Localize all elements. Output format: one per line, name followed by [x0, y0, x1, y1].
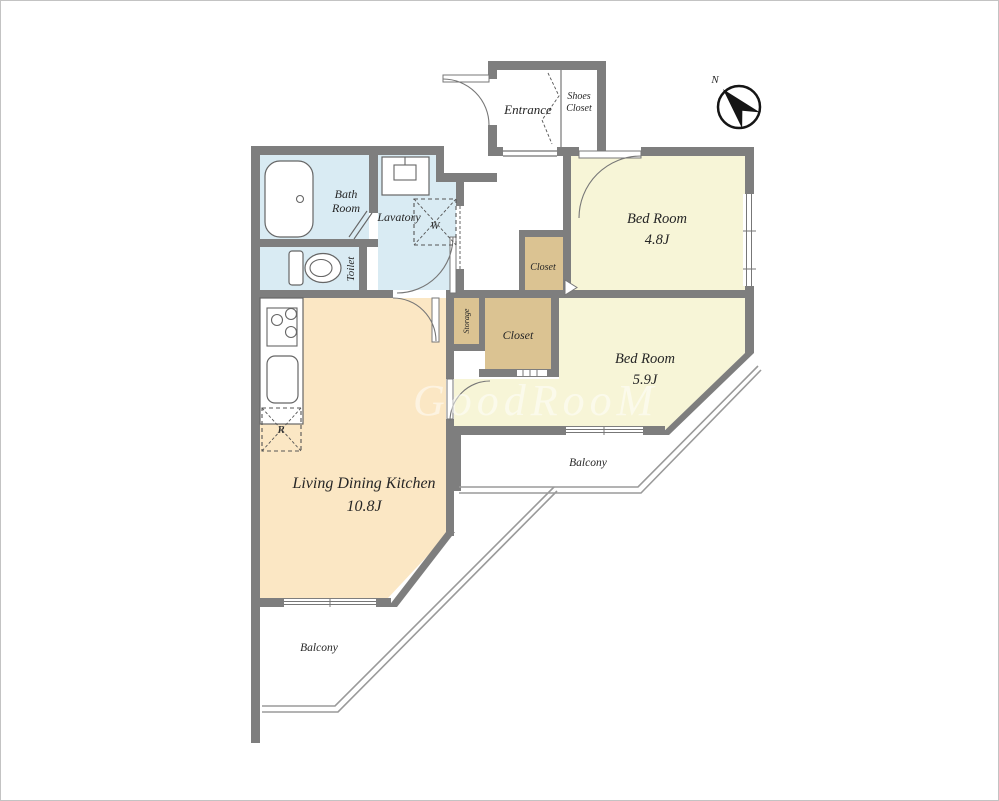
shoes-closet-label-2: Closet [566, 103, 592, 114]
shoes-closet-label-1: Shoes [567, 91, 590, 102]
wall-storage-closet-divider [479, 298, 485, 344]
closet-bedroom1-label: Closet [530, 262, 556, 273]
storage-label: Storage [462, 308, 471, 333]
bedroom2-area: 5.9J [633, 372, 658, 388]
ldk-name: Living Dining Kitchen [291, 475, 435, 492]
wall-entrance-bottom-left [488, 147, 503, 156]
bath-room-label-2: Room [331, 201, 360, 215]
balcony-lower-label: Balcony [300, 642, 339, 654]
wall-entrance-bottom-right [557, 147, 579, 156]
wall-step-vertical [436, 155, 444, 182]
wall-toilet-right [359, 247, 367, 290]
wall-storage-bottom [446, 344, 485, 351]
wall-lavatory-right-upper [456, 182, 464, 206]
wall-bath-bottom [260, 239, 378, 247]
toilet-tank [289, 251, 303, 285]
watermark: GoodRooM [413, 376, 658, 425]
floor-plan-canvas: GoodRooM N Entrance Shoes Closet Bath Ro… [0, 0, 999, 801]
bedroom1-window [743, 194, 756, 286]
wall-bedroom-separator [563, 290, 754, 298]
compass: N [710, 74, 760, 128]
lavatory-label: Lavatory [376, 210, 421, 224]
fridge-label: R [277, 424, 285, 436]
bedroom2-name: Bed Room [615, 351, 675, 367]
bedroom1-area: 4.8J [645, 232, 670, 248]
bathtub [265, 161, 313, 237]
wall-ldk-right [446, 435, 454, 536]
wall-entrance-top [488, 61, 606, 70]
bedroom1-name: Bed Room [627, 211, 687, 227]
balcony-upper-label: Balcony [569, 457, 608, 469]
wall-ldk-storage [446, 290, 454, 379]
wall-closet2-right [551, 298, 559, 377]
wall-closet1-left [519, 230, 525, 298]
toilet-label: Toilet [345, 256, 357, 282]
ldk-area: 10.8J [346, 498, 382, 515]
wall-bedroom1-top [641, 147, 754, 156]
wall-step-horizontal [444, 173, 497, 182]
north-label: N [710, 74, 719, 86]
wall-bedroom1-left [563, 156, 571, 290]
entrance-door-leaf [443, 75, 489, 82]
wall-hall-ldk [251, 290, 393, 298]
wall-balcony-divider [454, 435, 461, 491]
entrance-label: Entrance [503, 102, 552, 117]
closet-bedroom2-label: Closet [503, 328, 534, 342]
entrance-door-arc [443, 79, 489, 125]
wall-bath-lavatory-divider [369, 155, 378, 213]
wall-left-outer [251, 146, 260, 743]
washer-label: W [430, 220, 440, 232]
bath-room-label-1: Bath [335, 187, 358, 201]
wall-entrance-right [597, 61, 606, 156]
kitchen-sink [267, 356, 298, 403]
wall-closet1-top [519, 230, 563, 237]
wall-bath-top [251, 146, 444, 155]
floor-plan: GoodRooM N Entrance Shoes Closet Bath Ro… [1, 1, 999, 801]
